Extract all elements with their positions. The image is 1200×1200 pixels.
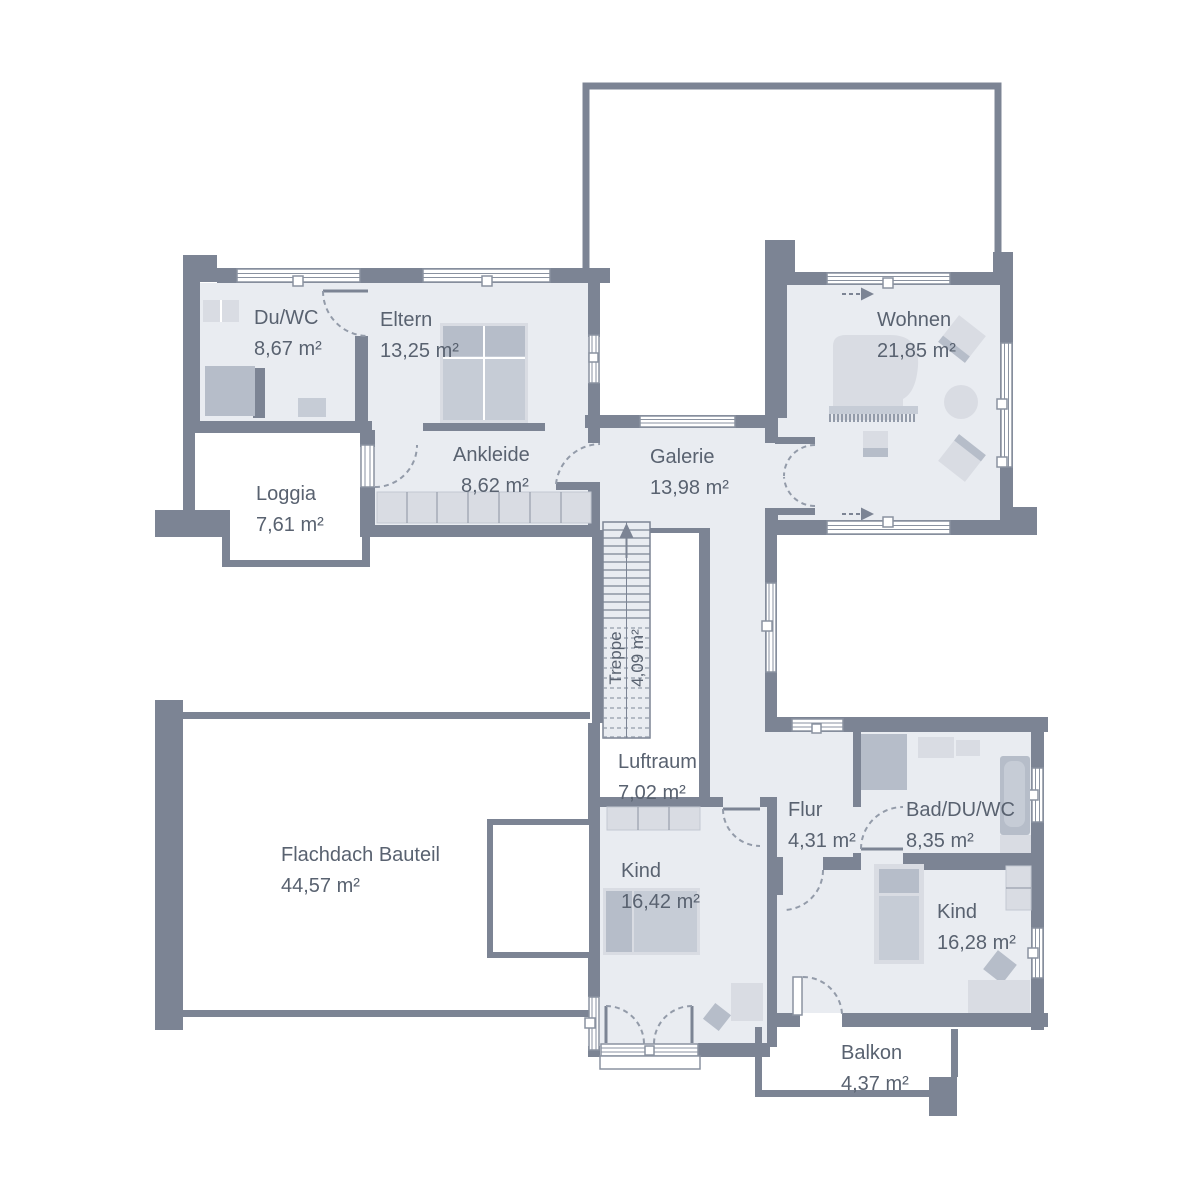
room-label-treppe: Treppe 4,09 m² xyxy=(605,588,649,728)
room-name: Du/WC xyxy=(254,303,322,334)
floor-plan: Du/WC 8,67 m² Eltern 13,25 m² Wohnen 21,… xyxy=(0,0,1200,1200)
window-terrace-south xyxy=(792,719,843,733)
window-eltern-gallery xyxy=(589,335,599,383)
toilet xyxy=(298,398,326,417)
round-table xyxy=(944,385,978,419)
room-area: 7,61 m² xyxy=(256,510,324,541)
room-area: 13,98 m² xyxy=(650,473,729,504)
window-gallery-void xyxy=(640,416,735,427)
room-label-balkon: Balkon 4,37 m² xyxy=(841,1038,909,1100)
room-name: Luftraum xyxy=(618,747,697,778)
room-name: Kind xyxy=(621,856,700,887)
wardrobe-kind1 xyxy=(607,807,700,830)
room-name: Bad/DU/WC xyxy=(906,795,1015,826)
room-label-wohnen: Wohnen 21,85 m² xyxy=(877,305,956,367)
room-label-kind2: Kind 16,28 m² xyxy=(937,897,1016,959)
room-label-eltern: Eltern 13,25 m² xyxy=(380,305,459,367)
room-area: 8,35 m² xyxy=(906,826,1015,857)
window-door-loggia xyxy=(361,445,374,487)
floor-plan-drawing xyxy=(0,0,1200,1200)
room-area: 44,57 m² xyxy=(281,871,440,902)
desk-kind2 xyxy=(968,980,1030,1013)
room-area: 8,67 m² xyxy=(254,334,322,365)
room-area: 4,31 m² xyxy=(788,826,856,857)
window-french-doors xyxy=(601,1044,698,1056)
room-name: Wohnen xyxy=(877,305,956,336)
room-name: Kind xyxy=(937,897,1016,928)
room-label-flachdach: Flachdach Bauteil 44,57 m² xyxy=(281,840,440,902)
room-area: 13,25 m² xyxy=(380,336,459,367)
room-area: 8,62 m² xyxy=(453,471,530,502)
room-fill-kind1-door xyxy=(723,797,760,807)
room-area: 21,85 m² xyxy=(877,336,956,367)
room-area: 4,09 m² xyxy=(627,588,649,728)
room-name: Eltern xyxy=(380,305,459,336)
room-fill-corridor xyxy=(710,530,765,797)
room-name: Ankleide xyxy=(453,440,530,471)
room-name: Flur xyxy=(788,795,856,826)
room-label-galerie: Galerie 13,98 m² xyxy=(650,442,729,504)
sink-bad-1 xyxy=(918,737,954,758)
window-kind1-west xyxy=(585,997,599,1050)
room-name: Galerie xyxy=(650,442,729,473)
room-name: Treppe xyxy=(605,588,627,728)
room-label-luftraum: Luftraum 7,02 m² xyxy=(618,747,697,809)
room-area: 16,42 m² xyxy=(621,887,700,918)
bed-kind2 xyxy=(874,864,924,964)
room-area: 16,28 m² xyxy=(937,928,1016,959)
room-name: Flachdach Bauteil xyxy=(281,840,440,871)
room-label-loggia: Loggia 7,61 m² xyxy=(256,479,324,541)
room-label-kind1: Kind 16,42 m² xyxy=(621,856,700,918)
desk-kind1 xyxy=(731,983,763,1021)
shower-bad xyxy=(861,734,907,790)
room-label-ankleide: Ankleide 8,62 m² xyxy=(453,440,530,502)
room-label-duwc: Du/WC 8,67 m² xyxy=(254,303,322,365)
shower xyxy=(205,366,255,416)
bench xyxy=(863,431,888,457)
french-door-sill xyxy=(600,1056,700,1069)
room-name: Balkon xyxy=(841,1038,909,1069)
room-name: Loggia xyxy=(256,479,324,510)
room-label-bad: Bad/DU/WC 8,35 m² xyxy=(906,795,1015,857)
roof-skylight xyxy=(490,822,592,955)
room-label-flur: Flur 4,31 m² xyxy=(788,795,856,857)
sink-bad-2 xyxy=(956,740,980,756)
room-area: 4,37 m² xyxy=(841,1069,909,1100)
room-area: 7,02 m² xyxy=(618,778,697,809)
